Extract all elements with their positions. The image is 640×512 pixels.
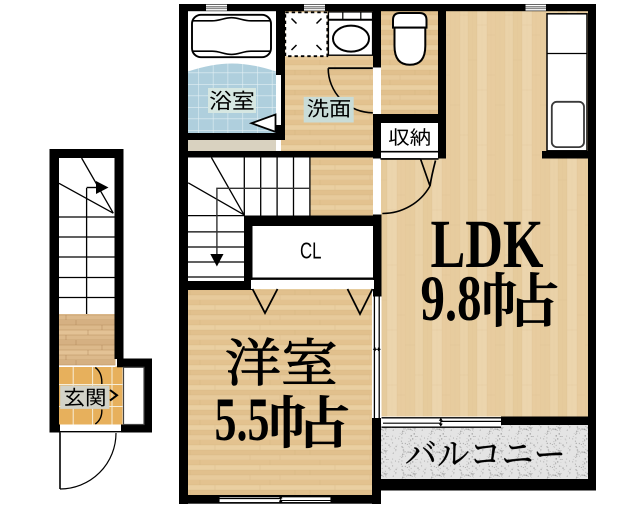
svg-text:5.5: 5.5	[215, 387, 270, 454]
svg-text:9.8: 9.8	[421, 263, 482, 335]
svg-text:CL: CL	[300, 238, 322, 264]
